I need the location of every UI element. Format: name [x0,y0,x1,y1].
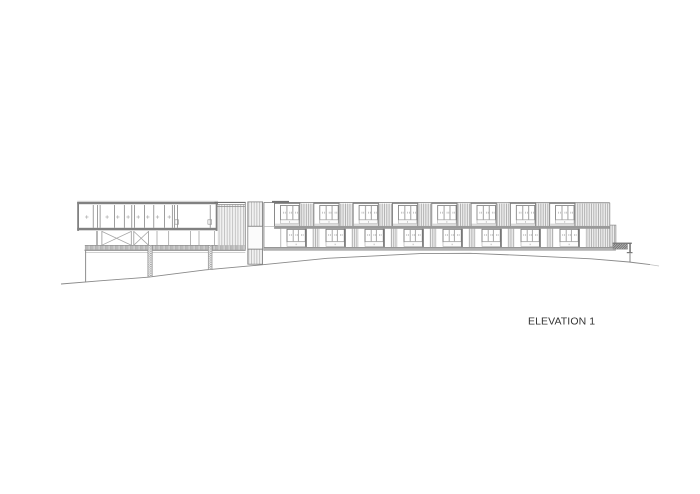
svg-text:ELEVATION 1: ELEVATION 1 [528,316,595,328]
